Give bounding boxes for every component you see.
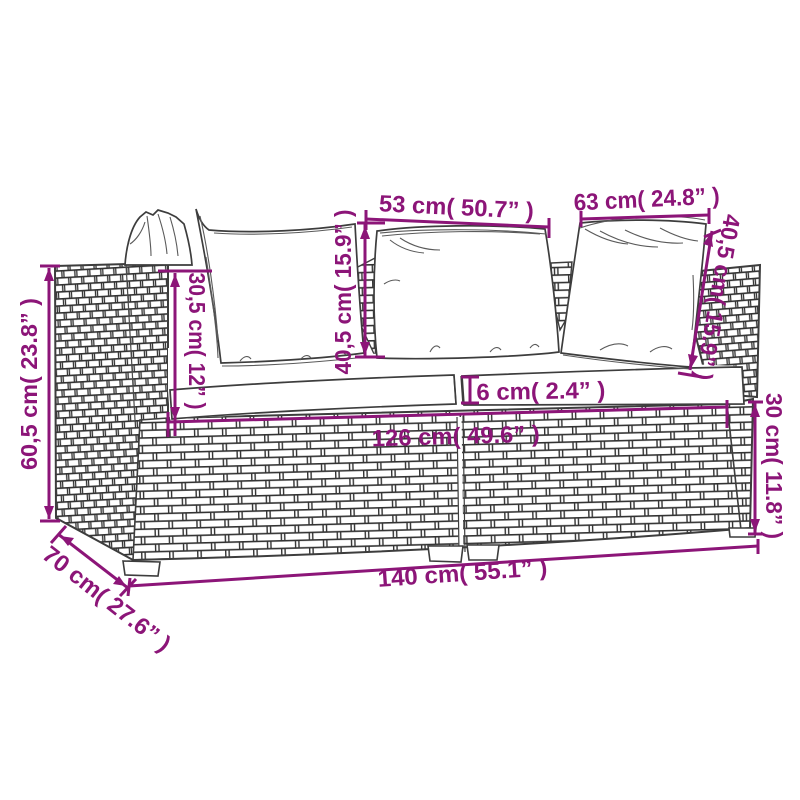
- svg-text:140 cm( 55.1” ): 140 cm( 55.1” ): [377, 554, 548, 592]
- svg-text:60,5 cm( 23.8” ): 60,5 cm( 23.8” ): [16, 298, 42, 470]
- svg-text:30 cm( 11.8” ): 30 cm( 11.8” ): [761, 393, 787, 539]
- svg-text:126 cm( 49.6” ): 126 cm( 49.6” ): [371, 421, 540, 452]
- svg-text:30,5 cm( 12” ): 30,5 cm( 12” ): [184, 273, 210, 410]
- svg-text:6 cm( 2.4” ): 6 cm( 2.4” ): [476, 377, 605, 405]
- svg-text:63 cm( 24.8” ): 63 cm( 24.8” ): [573, 183, 720, 216]
- svg-text:53 cm( 50.7” ): 53 cm( 50.7” ): [378, 190, 534, 224]
- svg-text:40,5 cm( 15.9” ): 40,5 cm( 15.9” ): [330, 210, 356, 375]
